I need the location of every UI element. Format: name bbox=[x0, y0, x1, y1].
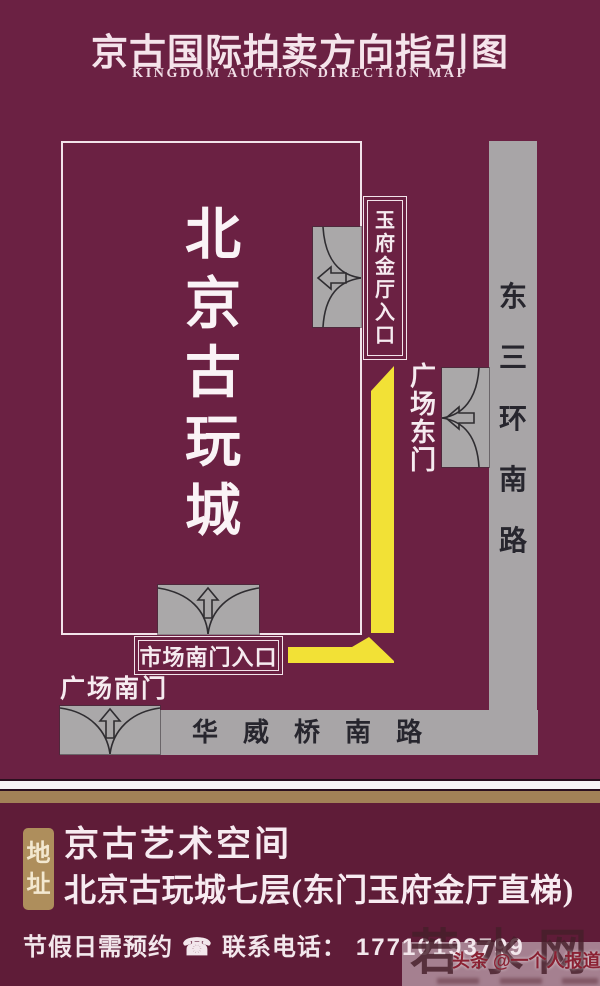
venue-address: 北京古玩城七层(东门玉府金厅直梯) bbox=[64, 871, 574, 909]
watermark-credit: 头条 @一个人报道 bbox=[452, 951, 600, 973]
road-label-char: 路 bbox=[499, 528, 527, 556]
gate-icon-market-south bbox=[158, 585, 259, 634]
label-char: 口 bbox=[375, 326, 395, 346]
label-char: 玉 bbox=[375, 211, 395, 231]
plaza-east-gate-label: 广 场 东 门 bbox=[406, 364, 440, 474]
road-label-char: 东 bbox=[499, 284, 527, 312]
gate-icon-plaza-east bbox=[442, 368, 489, 467]
market-south-entrance-label: 市场南门入口 bbox=[134, 636, 283, 675]
east-road-label: 东 三 环 南 路 bbox=[489, 284, 537, 556]
route-arrow bbox=[280, 360, 405, 670]
watermark-smudge bbox=[562, 978, 598, 984]
label-char: 厅 bbox=[375, 280, 395, 300]
direction-map-poster: 京古国际拍卖方向指引图 KINGDOM AUCTION DIRECTION MA… bbox=[0, 0, 600, 986]
badge-char: 地 bbox=[27, 842, 51, 866]
building-name: 北 京 古 玩 城 bbox=[183, 208, 243, 540]
road-label-char: 南 bbox=[499, 467, 527, 495]
label-char: 府 bbox=[375, 234, 395, 254]
watermark-smudge bbox=[437, 978, 479, 984]
phone-label: 联系电话： bbox=[222, 936, 347, 960]
label-char: 场 bbox=[410, 392, 436, 418]
label-char: 门 bbox=[410, 448, 436, 474]
gate-icon-plaza-south bbox=[60, 706, 160, 754]
jade-hall-entrance-label: 玉 府 金 厅 入 口 bbox=[363, 196, 407, 360]
south-road-label: 华 威 桥 南 路 bbox=[192, 710, 422, 755]
road-label-char: 华 bbox=[192, 720, 218, 746]
road-label-char: 桥 bbox=[294, 720, 320, 746]
label-char: 广 bbox=[410, 364, 436, 390]
building-name-char: 古 bbox=[185, 346, 241, 402]
building-name-char: 北 bbox=[185, 208, 241, 264]
road-label-char: 南 bbox=[345, 720, 371, 746]
road-label-char: 三 bbox=[499, 345, 527, 373]
road-label-char: 环 bbox=[499, 406, 527, 434]
label-char: 金 bbox=[375, 257, 395, 277]
divider-tan-stripe bbox=[0, 791, 600, 803]
building-name-char: 京 bbox=[185, 277, 241, 333]
building-name-char: 玩 bbox=[185, 415, 241, 471]
label-char: 东 bbox=[410, 420, 436, 446]
label-char: 入 bbox=[375, 303, 395, 323]
road-label-char: 威 bbox=[243, 720, 269, 746]
venue-name: 京古艺术空间 bbox=[64, 824, 292, 866]
divider-white-stripe bbox=[0, 781, 600, 789]
watermark-smudge bbox=[500, 978, 542, 984]
address-badge: 地 址 bbox=[23, 828, 54, 910]
badge-char: 址 bbox=[27, 873, 51, 897]
phone-icon: ☎ bbox=[182, 936, 213, 960]
building-name-char: 城 bbox=[185, 484, 241, 540]
poster-subtitle: KINGDOM AUCTION DIRECTION MAP bbox=[0, 66, 600, 82]
gate-icon-jade-hall bbox=[313, 227, 361, 327]
reservation-notice: 节假日需预约 bbox=[23, 936, 173, 960]
plaza-south-gate-label: 广场南门 bbox=[60, 677, 168, 702]
road-label-char: 路 bbox=[396, 720, 422, 746]
label-text: 市场南门入口 bbox=[139, 640, 277, 672]
